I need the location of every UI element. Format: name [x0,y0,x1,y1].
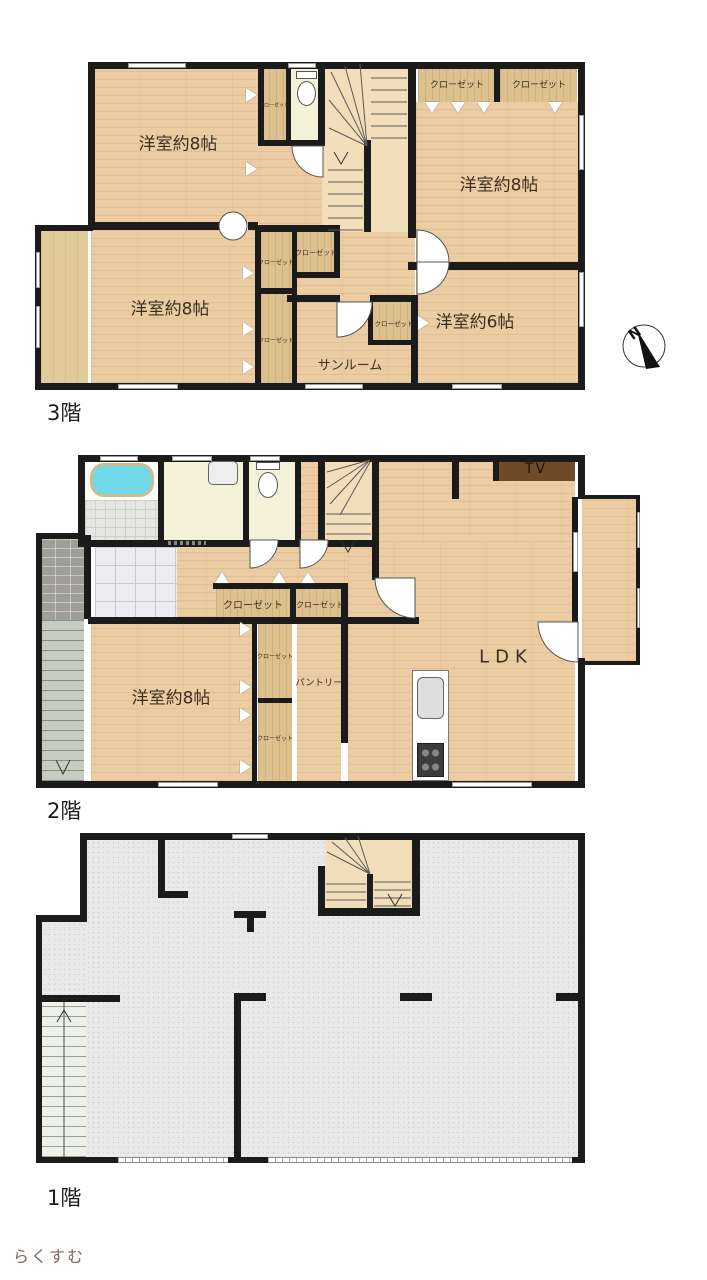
wall [412,833,420,916]
floorplan-page: 洋室約8帖 洋室約8帖 洋室約8帖 洋室約6帖 サンルーム クローゼット クロー… [0,0,707,1280]
window [128,63,186,68]
door-triangle [272,572,286,583]
window [232,834,268,839]
window [172,456,212,461]
wall [556,993,585,1001]
room-3f-hall [259,146,322,232]
wall [368,340,415,345]
closet-label: クローゼット [223,597,283,612]
washbasin-icon [208,461,238,485]
door-triangle [246,88,257,102]
room-label: 洋室約6帖 [436,308,515,333]
closet-label: クローゼット [258,258,294,267]
wall [35,225,93,231]
wall [80,833,585,840]
room-label: 洋室約8帖 [139,130,218,155]
room-2f-outdoor-stairs [40,620,84,781]
bathtub-icon [90,463,154,497]
wall [252,624,257,781]
window [637,512,640,548]
brand-name: らくすむ [13,1243,85,1267]
closet-label: クローゼット [257,734,293,743]
toilet-icon [297,81,316,106]
room-label: パントリー [295,675,342,689]
toilet-icon [258,472,278,498]
closet-label: クローゼット [512,78,566,91]
room-2f-shower [85,500,158,540]
wall [36,533,84,539]
wall [578,455,585,499]
wall [318,455,325,541]
door-triangle [418,316,429,330]
door-triangle [243,322,254,336]
compass-needle [637,330,660,369]
door-triangle [215,572,229,583]
wall [213,583,348,589]
wall [36,995,120,1002]
wall [247,918,254,932]
closet-label: クローゼット [375,318,414,328]
window [573,532,578,572]
wall [318,62,325,146]
wall [318,866,325,916]
door-triangle [243,360,254,374]
window [305,384,363,389]
room-label: サンルーム [318,355,383,374]
window [100,456,138,461]
wall [400,993,432,1001]
closet-label: クローゼット [258,336,294,345]
wall [368,302,373,344]
room-3f-balcony [41,231,88,383]
wall [578,495,640,499]
room-label-ldk: LDK [479,647,533,668]
wall [578,62,585,390]
toilet-icon [256,462,280,470]
compass-north-label: N [626,324,645,344]
brand-logo: らくすむ [8,1243,85,1267]
window [637,588,640,628]
window [452,782,532,787]
wall [370,295,418,302]
wall [158,840,165,898]
room-2f-entrance [95,547,177,617]
closet-label: クローゼット [296,598,344,610]
wall [158,458,164,542]
stove-icon [417,743,444,777]
wall [36,915,42,1163]
door-triangle [240,760,251,774]
door-triangle [425,102,439,113]
window [452,384,502,389]
door-triangle [240,622,251,636]
wall [258,698,292,703]
garage-shutter [118,1157,228,1163]
window [118,384,178,389]
window [579,115,584,170]
window [250,456,280,461]
wall [367,874,373,908]
floor-label-1f: 1階 [47,1182,81,1212]
wall [84,535,91,619]
wall [36,915,86,922]
closet-label: クローゼット [257,652,293,661]
wall [318,908,420,916]
room-2f-balcony [582,499,636,661]
kitchen-sink-icon [417,677,444,719]
floor-label-3f: 3階 [47,397,81,427]
closet-label: クローゼット [259,100,289,108]
sliding-door [168,541,206,545]
wall [494,62,500,102]
wall [372,455,379,580]
wall [258,140,324,146]
toilet-icon [296,71,317,79]
closet-label: クローゼット [430,78,484,91]
wall [408,262,578,270]
wall [88,617,347,624]
door-triangle [240,680,251,694]
room-label: 洋室約8帖 [132,684,211,709]
room-2f-hall-strip [301,462,318,540]
door-triangle [301,572,315,583]
wall [80,455,585,462]
window [36,306,40,348]
closet-label: クローゼット [295,247,337,258]
wall [234,1001,241,1157]
wall [295,455,301,547]
room-2f-ldk [348,542,575,781]
wall [88,62,95,230]
wall [408,62,416,238]
window [36,252,40,288]
room-2f-porch [40,539,84,620]
room-label: 洋室約8帖 [460,171,539,196]
room-1f-outdoor-stairs [42,1002,86,1157]
wall [88,222,220,230]
wall [158,891,188,898]
wall [278,540,300,547]
wall [578,661,640,665]
room-label: 洋室約8帖 [131,295,210,320]
room-2f-pantry [297,624,341,781]
garage-shutter [268,1157,572,1163]
wall [255,232,261,383]
wall [255,288,297,294]
wall [234,993,266,1001]
wall [78,540,250,547]
window [288,63,316,68]
door-triangle [548,102,562,113]
door-triangle [240,708,251,722]
wall [80,833,87,922]
wall [348,617,419,624]
door-triangle [243,266,254,280]
wall [243,458,249,542]
wall [452,455,459,499]
wall [36,533,42,788]
wall [578,658,585,788]
door-triangle [246,162,257,176]
room-1f-side [42,922,86,995]
wall [287,295,340,302]
compass: N [623,324,665,369]
door-triangle [477,102,491,113]
window [579,272,584,327]
tv-label: TV [525,461,547,477]
window [158,782,218,787]
wall [328,540,379,547]
wall [234,911,266,918]
floor-label-2f: 2階 [47,795,81,825]
wall [255,225,340,232]
door-triangle [451,102,465,113]
wall [493,455,499,481]
wall [364,140,371,232]
